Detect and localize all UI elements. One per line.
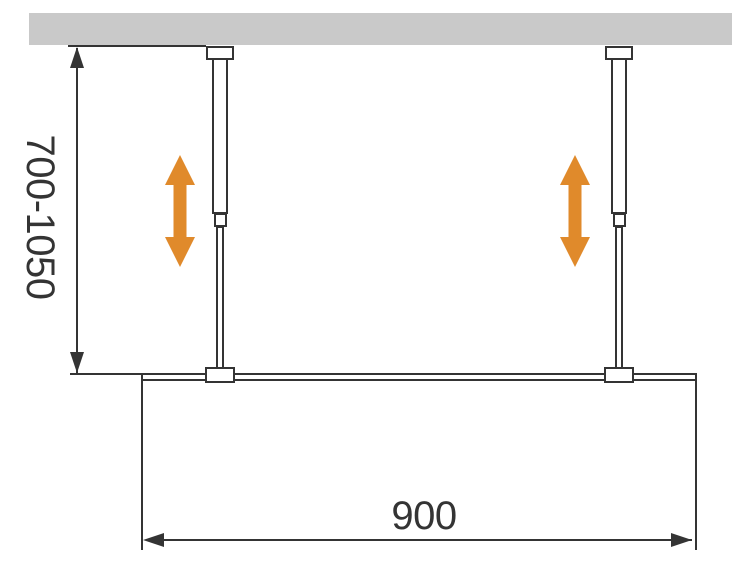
inner-rod-left (216, 226, 224, 372)
arrowhead-right-icon (671, 533, 692, 547)
adjustment-arrow-left-icon (165, 155, 195, 267)
inner-rod-right (615, 226, 623, 372)
adjust-collar-right (613, 213, 626, 227)
height-dimension-label: 700-1050 (20, 134, 60, 299)
arrowhead-up-icon (70, 47, 84, 68)
ceiling-slab (29, 13, 732, 45)
ceiling-bracket-right (605, 46, 633, 60)
glass-left-edge (141, 373, 143, 550)
arrowhead-left-icon (143, 533, 164, 547)
glass-clamp-left (205, 367, 235, 383)
dimension-drawing: 700-1050 900 (0, 0, 750, 562)
ceiling-bracket-left (206, 46, 234, 60)
glass-right-edge (695, 373, 697, 550)
extension-line-bottom (70, 373, 143, 375)
width-dimension-label: 900 (391, 496, 456, 536)
arrowhead-down-icon (70, 352, 84, 373)
extension-line-top (68, 45, 206, 47)
adjustment-arrow-right-icon (560, 155, 590, 267)
width-dimension-line (146, 539, 692, 541)
height-dimension-line (76, 48, 78, 373)
outer-tube-right (611, 58, 627, 214)
outer-tube-left (212, 58, 228, 214)
glass-clamp-right (604, 367, 634, 383)
adjust-collar-left (214, 213, 227, 227)
